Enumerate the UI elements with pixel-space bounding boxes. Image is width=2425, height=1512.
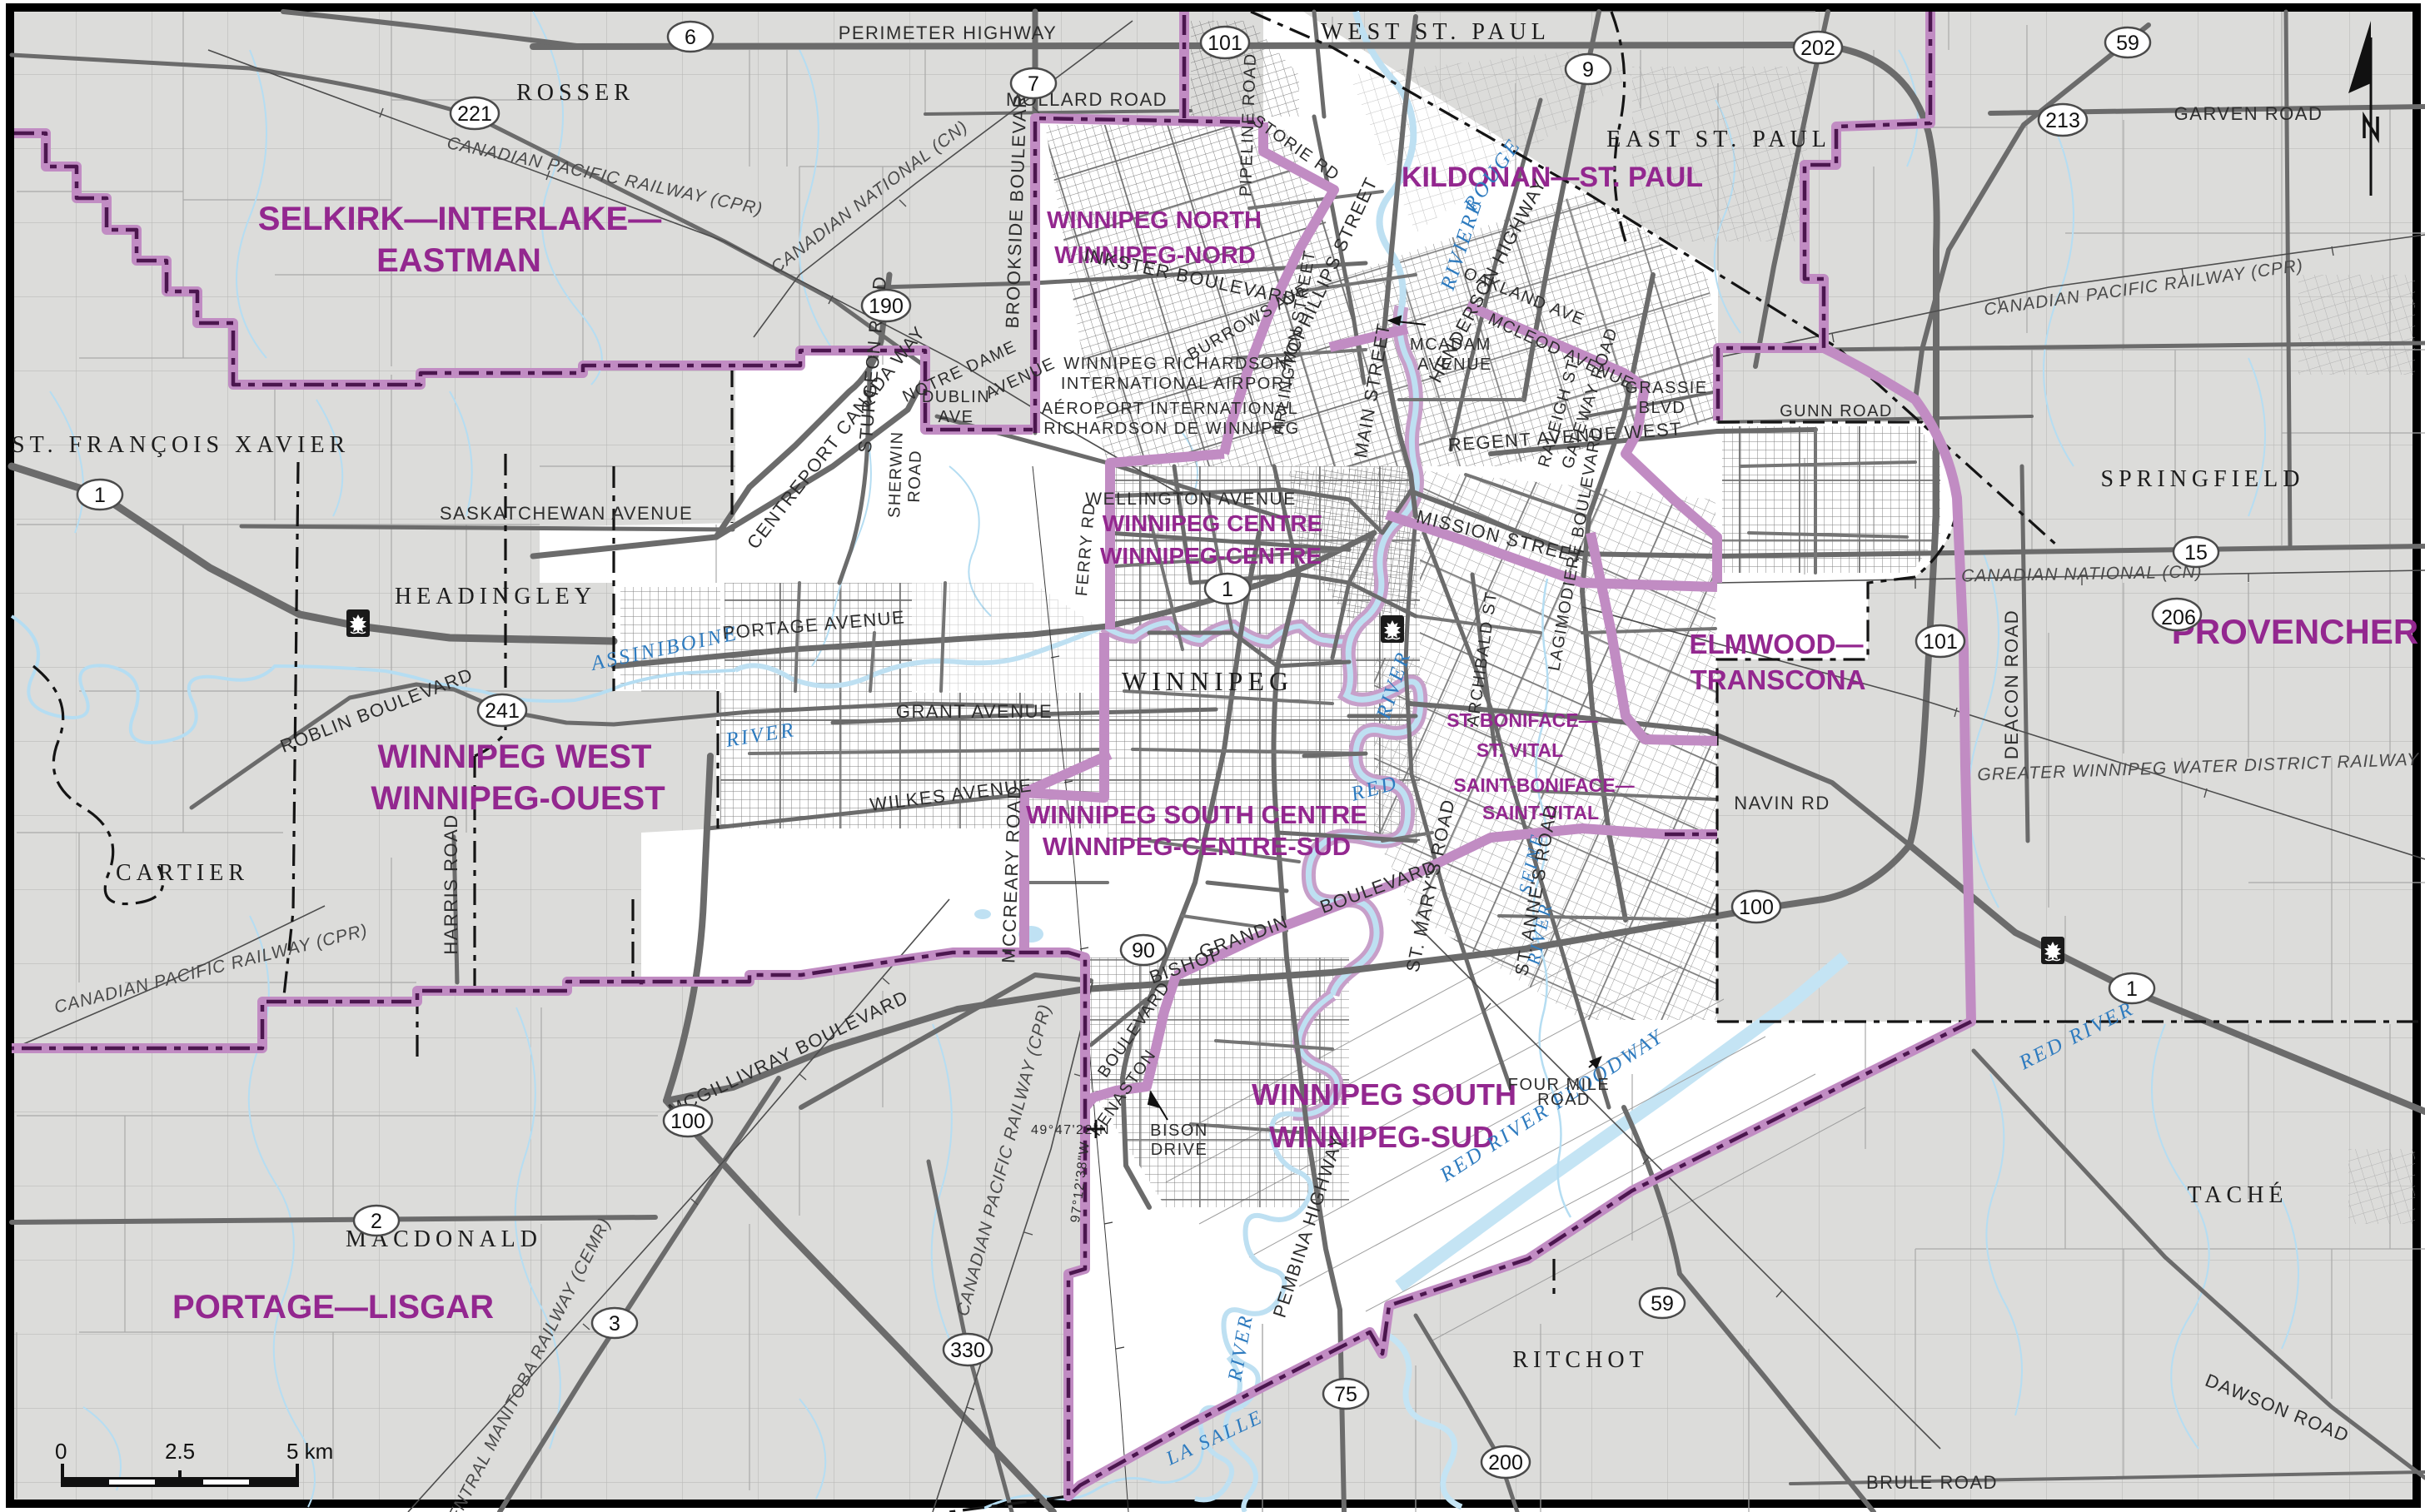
svg-text:ST. FRANÇOIS XAVIER: ST. FRANÇOIS XAVIER — [12, 432, 350, 458]
svg-text:CARTIER: CARTIER — [116, 860, 249, 886]
svg-text:WINNIPEG WEST: WINNIPEG WEST — [378, 739, 652, 775]
svg-text:90: 90 — [1132, 939, 1155, 962]
svg-text:ELMWOOD—: ELMWOOD— — [1690, 629, 1864, 659]
svg-text:BISON: BISON — [1150, 1122, 1208, 1140]
svg-text:GARVEN ROAD: GARVEN ROAD — [2174, 103, 2323, 124]
svg-text:DUBLIN: DUBLIN — [922, 388, 990, 406]
svg-text:206: 206 — [2161, 606, 2196, 629]
svg-text:1: 1 — [94, 484, 106, 507]
svg-text:INTERNATIONAL AIRPORT: INTERNATIONAL AIRPORT — [1061, 375, 1296, 393]
svg-text:WINNIPEG-CENTRE-SUD: WINNIPEG-CENTRE-SUD — [1043, 832, 1351, 861]
svg-text:5 km: 5 km — [286, 1439, 333, 1464]
svg-text:100: 100 — [670, 1110, 705, 1133]
svg-text:NAVIN RD: NAVIN RD — [1734, 793, 1830, 813]
svg-text:SHERWIN: SHERWIN — [885, 430, 907, 518]
svg-text:ROAD: ROAD — [1537, 1091, 1591, 1109]
svg-text:2: 2 — [371, 1210, 382, 1233]
svg-text:PORTAGE—LISGAR: PORTAGE—LISGAR — [172, 1289, 494, 1325]
svg-text:SAINT-BONIFACE—: SAINT-BONIFACE— — [1453, 774, 1634, 796]
svg-text:7: 7 — [1028, 72, 1039, 96]
svg-text:PROVENCHER: PROVENCHER — [2172, 612, 2418, 651]
svg-text:100: 100 — [1739, 896, 1774, 919]
svg-text:WINNIPEG-SUD: WINNIPEG-SUD — [1269, 1120, 1494, 1154]
svg-text:KILDONAN—ST. PAUL: KILDONAN—ST. PAUL — [1402, 162, 1703, 193]
svg-text:GUNN ROAD: GUNN ROAD — [1780, 402, 1893, 420]
svg-text:HEADINGLEY: HEADINGLEY — [395, 584, 596, 609]
svg-text:200: 200 — [1488, 1451, 1523, 1475]
svg-text:WINNIPEG RICHARDSON: WINNIPEG RICHARDSON — [1063, 355, 1288, 373]
svg-text:SELKIRK—INTERLAKE—: SELKIRK—INTERLAKE— — [258, 201, 661, 237]
svg-text:WINNIPEG SOUTH CENTRE: WINNIPEG SOUTH CENTRE — [1026, 800, 1367, 829]
svg-text:GRANT AVENUE: GRANT AVENUE — [896, 701, 1053, 722]
svg-text:101: 101 — [1923, 630, 1958, 654]
svg-text:DRIVE: DRIVE — [1151, 1141, 1208, 1159]
svg-text:WINNIPEG-OUEST: WINNIPEG-OUEST — [371, 780, 665, 817]
svg-text:SPRINGFIELD: SPRINGFIELD — [2101, 466, 2305, 492]
svg-text:GRASSIE: GRASSIE — [1625, 379, 1707, 397]
svg-text:202: 202 — [1800, 37, 1835, 60]
svg-text:BLVD: BLVD — [1639, 399, 1686, 417]
svg-text:ROSSER: ROSSER — [516, 80, 635, 106]
svg-text:AÉROPORT INTERNATIONAL: AÉROPORT INTERNATIONAL — [1042, 399, 1299, 418]
svg-text:59: 59 — [2116, 32, 2139, 55]
svg-text:DEACON ROAD: DEACON ROAD — [2001, 609, 2022, 759]
svg-text:241: 241 — [485, 699, 520, 723]
svg-text:221: 221 — [457, 102, 492, 126]
svg-text:59: 59 — [1651, 1292, 1674, 1316]
svg-text:WINNIPEG SOUTH: WINNIPEG SOUTH — [1252, 1077, 1516, 1112]
svg-text:RITCHOT: RITCHOT — [1512, 1347, 1648, 1373]
svg-text:3: 3 — [609, 1312, 620, 1335]
svg-text:HARRIS ROAD: HARRIS ROAD — [441, 813, 461, 954]
svg-text:WINNIPEG CENTRE: WINNIPEG CENTRE — [1103, 510, 1322, 536]
svg-text:SASKATCHEWAN AVENUE: SASKATCHEWAN AVENUE — [440, 503, 693, 524]
svg-text:TACHÉ: TACHÉ — [2187, 1182, 2288, 1208]
svg-text:213: 213 — [2045, 109, 2080, 132]
svg-text:RICHARDSON DE WINNIPEG: RICHARDSON DE WINNIPEG — [1043, 420, 1299, 438]
svg-text:EASTMAN: EASTMAN — [376, 242, 541, 279]
svg-text:WELLINGTON AVENUE: WELLINGTON AVENUE — [1085, 490, 1296, 509]
svg-text:9: 9 — [1582, 58, 1594, 82]
svg-text:AVENUE: AVENUE — [1417, 356, 1492, 374]
svg-text:WINNIPEG NORTH: WINNIPEG NORTH — [1047, 207, 1262, 234]
svg-text:ROAD: ROAD — [905, 450, 925, 504]
svg-text:MCADAM: MCADAM — [1410, 336, 1491, 354]
svg-text:WEST ST. PAUL: WEST ST. PAUL — [1321, 19, 1551, 45]
svg-text:1: 1 — [1222, 578, 1233, 601]
svg-text:101: 101 — [1208, 32, 1242, 55]
svg-text:AVE: AVE — [938, 408, 973, 426]
svg-text:WINNIPEG: WINNIPEG — [1122, 666, 1293, 696]
svg-text:75: 75 — [1334, 1383, 1357, 1406]
svg-text:0: 0 — [55, 1439, 67, 1464]
svg-text:2.5: 2.5 — [165, 1439, 195, 1464]
svg-text:BRULE ROAD: BRULE ROAD — [1866, 1472, 1998, 1493]
svg-text:330: 330 — [950, 1339, 985, 1362]
svg-text:15: 15 — [2184, 541, 2208, 565]
svg-text:190: 190 — [869, 295, 904, 318]
svg-text:ST. VITAL: ST. VITAL — [1476, 739, 1563, 761]
svg-text:1: 1 — [2126, 977, 2138, 1001]
svg-text:PERIMETER HIGHWAY: PERIMETER HIGHWAY — [839, 22, 1058, 43]
svg-text:EAST ST. PAUL: EAST ST. PAUL — [1606, 127, 1831, 152]
svg-text:TRANSCONA: TRANSCONA — [1691, 664, 1866, 695]
svg-text:6: 6 — [685, 26, 696, 49]
svg-text:WINNIPEG-CENTRE: WINNIPEG-CENTRE — [1100, 543, 1322, 569]
